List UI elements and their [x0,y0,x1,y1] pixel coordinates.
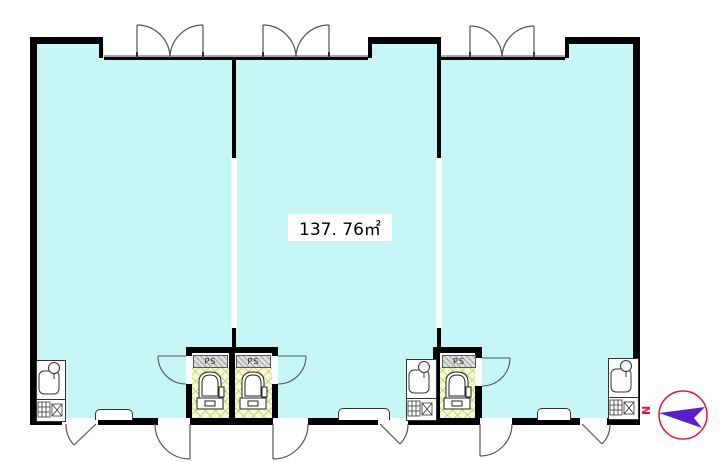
entry-door-unit1-a [66,424,96,445]
toilet-fixture-unit3 [444,372,471,409]
entry-door-unit2-b [380,424,408,444]
double-door-top-3 [470,26,534,58]
stove-grid-unit1 [38,402,62,417]
entry-door-unit1-b [155,424,190,459]
sink-fixture-unit2 [409,362,430,394]
ps-shaft-unit1: PS [193,355,228,368]
ps-shaft-unit3: PS [442,355,476,368]
floor-plan: 137. 76㎡ PS PS PS N [0,0,720,462]
ps-shaft-unit2: PS [236,355,271,368]
toilet-door-unit3 [482,358,510,386]
compass [659,391,707,439]
north-label: N [640,401,654,415]
entry-door-unit3-a [480,424,512,456]
toilet-door-unit1 [158,356,186,384]
stove-grid-unit2 [408,401,432,416]
sink-fixture-unit1 [39,363,60,395]
stove-grid-unit3 [610,400,634,415]
toilet-fixture-unit1 [197,372,224,409]
entry-door-unit2-a [273,424,308,459]
entry-door-unit3-b [582,424,610,444]
sink-fixture-unit3 [611,361,632,393]
compass-needle-icon [659,407,705,428]
toilet-fixture-unit2 [240,372,267,409]
double-door-top-1 [137,25,203,58]
area-label: 137. 76㎡ [288,214,392,241]
toilet-door-unit2 [278,356,306,384]
double-door-top-2 [263,25,329,58]
